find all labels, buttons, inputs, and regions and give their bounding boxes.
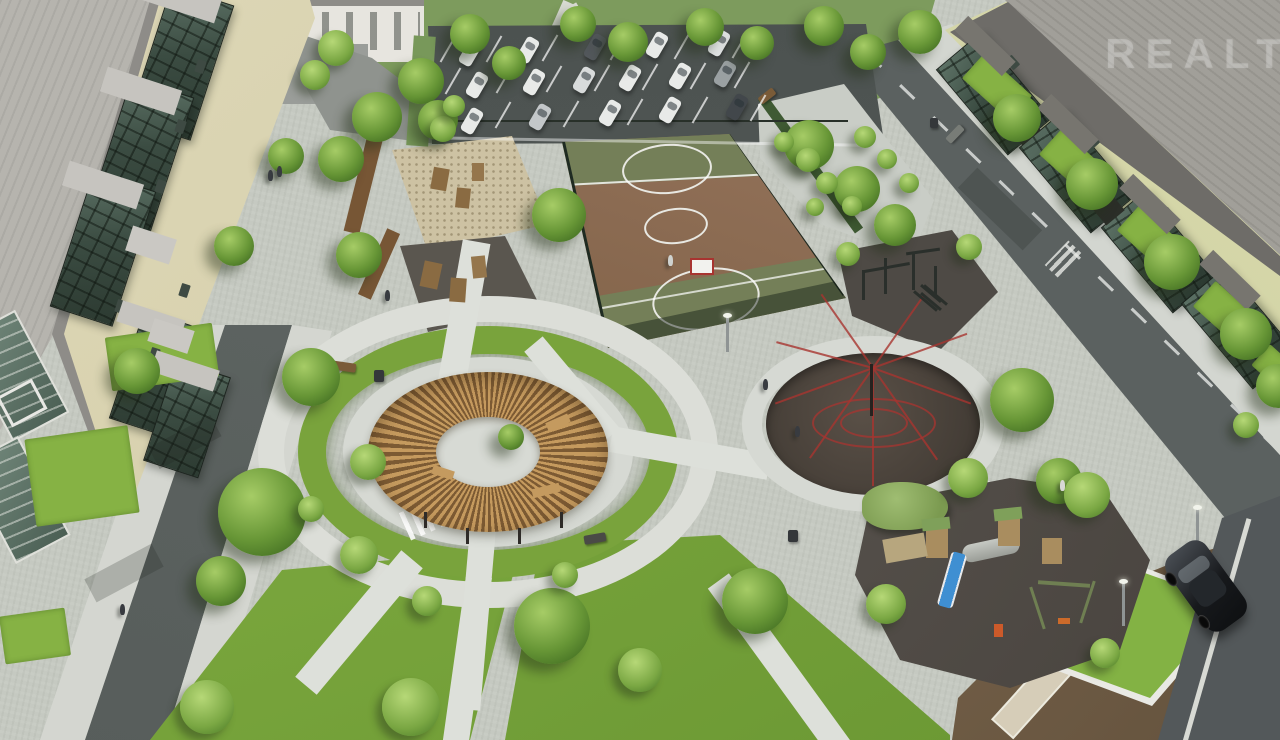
playground-leaf-canopy [862, 482, 948, 530]
court-center-circle [642, 205, 709, 247]
farleft-glass-porch-2 [0, 439, 68, 562]
prop [358, 228, 400, 299]
person [385, 290, 390, 301]
web-ring-inner [840, 408, 908, 438]
tree [318, 136, 364, 182]
courtyard-aerial-render: REALT [0, 0, 1280, 740]
tree [336, 232, 382, 278]
person [268, 170, 273, 181]
trash-bin [788, 530, 798, 542]
basketball-backboard [690, 258, 714, 275]
watermark: REALT [1105, 30, 1280, 78]
person [277, 166, 282, 177]
prop [344, 137, 383, 234]
lawn-patch [0, 608, 71, 665]
tree [268, 138, 304, 174]
pergola-hole [436, 417, 540, 487]
